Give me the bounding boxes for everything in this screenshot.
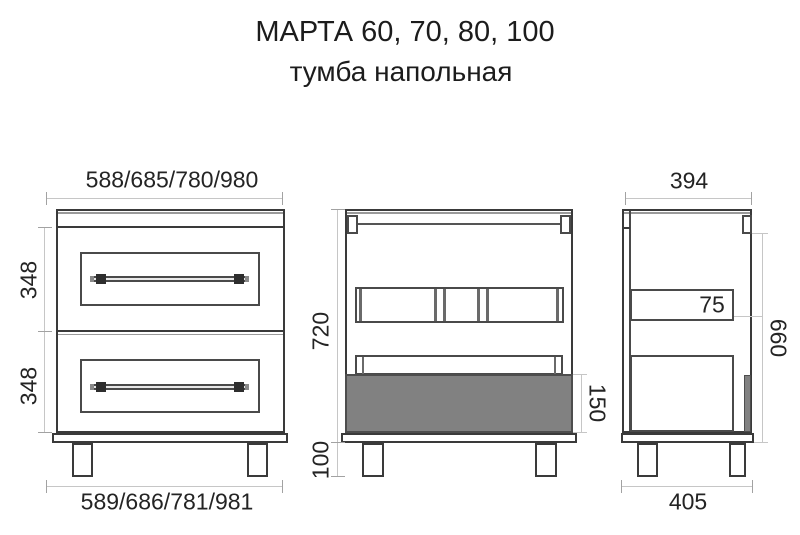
side-drawer-box <box>630 355 734 432</box>
depth-bottom-label: 405 <box>669 491 707 514</box>
side-view: 394 75 660 405 <box>0 0 800 535</box>
front-panel-joint-line <box>624 227 630 229</box>
side-bracket <box>742 215 752 234</box>
depth-top-label: 394 <box>670 170 708 193</box>
rail-leader-line <box>734 316 762 317</box>
side-height-label: 660 <box>767 319 790 357</box>
side-plinth <box>621 433 754 443</box>
side-drawer-back-strip <box>744 375 751 432</box>
ext-line <box>752 233 768 234</box>
ext-line <box>754 442 768 443</box>
side-right-dim-line <box>762 233 763 443</box>
dim-tick <box>621 480 622 493</box>
side-bottom-dim-line <box>621 486 753 487</box>
side-front-leg <box>637 443 658 477</box>
dim-tick <box>625 192 626 205</box>
dim-tick <box>752 480 753 493</box>
rail-height-label: 75 <box>699 294 725 317</box>
technical-drawing-canvas: МАРТА 60, 70, 80, 100 тумба напольная 58… <box>0 0 800 535</box>
countertop-edge-line <box>624 212 750 214</box>
side-top-dim-line <box>625 198 752 199</box>
side-back-leg <box>729 443 746 477</box>
dim-tick <box>751 192 752 205</box>
